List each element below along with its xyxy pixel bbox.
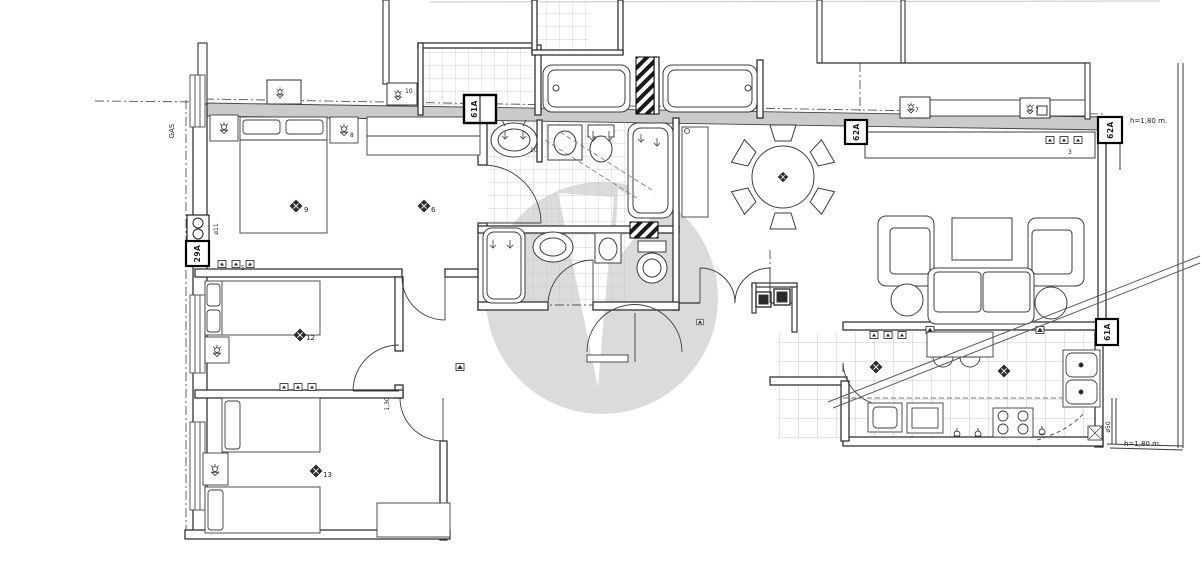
nook-fixtures xyxy=(756,289,790,307)
dining-chair xyxy=(770,125,796,141)
bedroom2-door-arc xyxy=(353,345,399,391)
pillow xyxy=(243,120,280,134)
svg-text:61A: 61A xyxy=(470,100,479,118)
bathtub xyxy=(483,228,525,303)
floorplan-scan: 29A 61A 62A 62A 61A GAS h=1,80 m. h=1,80… xyxy=(0,0,1202,586)
ceiling-light-icon xyxy=(310,465,322,477)
dining-chair xyxy=(770,213,796,229)
bedroom1-door-arc xyxy=(402,277,445,320)
wall-box-62a-terrace: 62A xyxy=(1098,117,1122,143)
light-label-13: 13 xyxy=(323,471,332,479)
bedroom2-furniture xyxy=(205,281,320,363)
tall-cabinet xyxy=(682,127,708,217)
sideboard xyxy=(865,132,1095,158)
tv-note-3: 3 xyxy=(1068,149,1072,156)
light-label-9: 9 xyxy=(304,206,308,214)
wall-box-62a-dining: 62A xyxy=(845,120,867,144)
lamp-note-7a: 7 xyxy=(915,107,919,114)
svg-text:62A: 62A xyxy=(852,123,861,141)
bedroom1-furniture xyxy=(210,115,480,233)
diameter-note-kitchen: ø50 xyxy=(1105,421,1112,432)
height-note-top: h=1,80 m. xyxy=(1130,117,1167,125)
coffee-table xyxy=(952,218,1012,260)
nightstand-note-8: 8 xyxy=(350,132,354,139)
kitchen-island xyxy=(927,332,993,357)
sofa xyxy=(928,268,1034,324)
bathtub-vertical xyxy=(628,123,673,218)
ventilation-shaft-top xyxy=(636,57,654,114)
side-table-round xyxy=(891,284,923,316)
pillow xyxy=(225,401,240,449)
pillow xyxy=(208,490,223,530)
pillow xyxy=(286,120,323,134)
bedroom3-door-arc xyxy=(400,398,443,441)
console-table xyxy=(587,355,628,362)
bathtub-top-left xyxy=(543,65,630,112)
floorplan-svg: 29A 61A 62A 62A 61A GAS h=1,80 m. h=1,80… xyxy=(0,0,1202,586)
svg-text:62A: 62A xyxy=(1106,121,1115,139)
pillow xyxy=(207,284,220,306)
lamp-note-7b: 7 xyxy=(1035,107,1039,114)
dining-room xyxy=(682,125,835,229)
light-label-6: 6 xyxy=(431,206,436,214)
diameter-note-meter: ø11 xyxy=(213,223,220,234)
sink xyxy=(554,131,576,155)
meter-box: 29A xyxy=(186,215,209,266)
oven xyxy=(907,403,943,433)
door-width-note: 1,30 xyxy=(384,397,391,411)
pillow xyxy=(207,310,220,332)
bathtub-top-right xyxy=(663,65,757,112)
svg-text:61A: 61A xyxy=(1103,323,1112,341)
wall-box-61a-bath: 61A xyxy=(464,95,496,123)
armchair-right xyxy=(1028,218,1084,286)
wall-lamp-note-10: 10 xyxy=(405,88,413,95)
toilet-cistern xyxy=(638,241,666,252)
armchair-left xyxy=(878,216,934,286)
meter-box-label: 29A xyxy=(193,245,202,263)
balcony-rail xyxy=(930,100,1085,116)
switch-note-5: 5 xyxy=(241,265,245,272)
basin-note-10: 10 xyxy=(530,147,538,154)
height-note-bottom: h=1,80 m. xyxy=(1124,440,1161,448)
wall-box-61a-kitchen: 61A xyxy=(1096,319,1118,345)
kitchen-sink-double xyxy=(1063,350,1100,407)
ceiling-light-icon xyxy=(418,200,430,212)
light-label-12: 12 xyxy=(306,334,315,342)
dresser xyxy=(377,503,450,537)
living-room-furniture xyxy=(865,132,1095,334)
washing-machine xyxy=(868,403,902,432)
ventilation-shaft-lower xyxy=(630,222,658,238)
bedroom3-furniture xyxy=(203,398,450,537)
cooktop xyxy=(993,408,1033,437)
switch-icon xyxy=(456,364,464,371)
upper-strip-tiles xyxy=(533,2,589,51)
gas-label: GAS xyxy=(168,123,176,138)
switch-icon xyxy=(697,319,703,325)
